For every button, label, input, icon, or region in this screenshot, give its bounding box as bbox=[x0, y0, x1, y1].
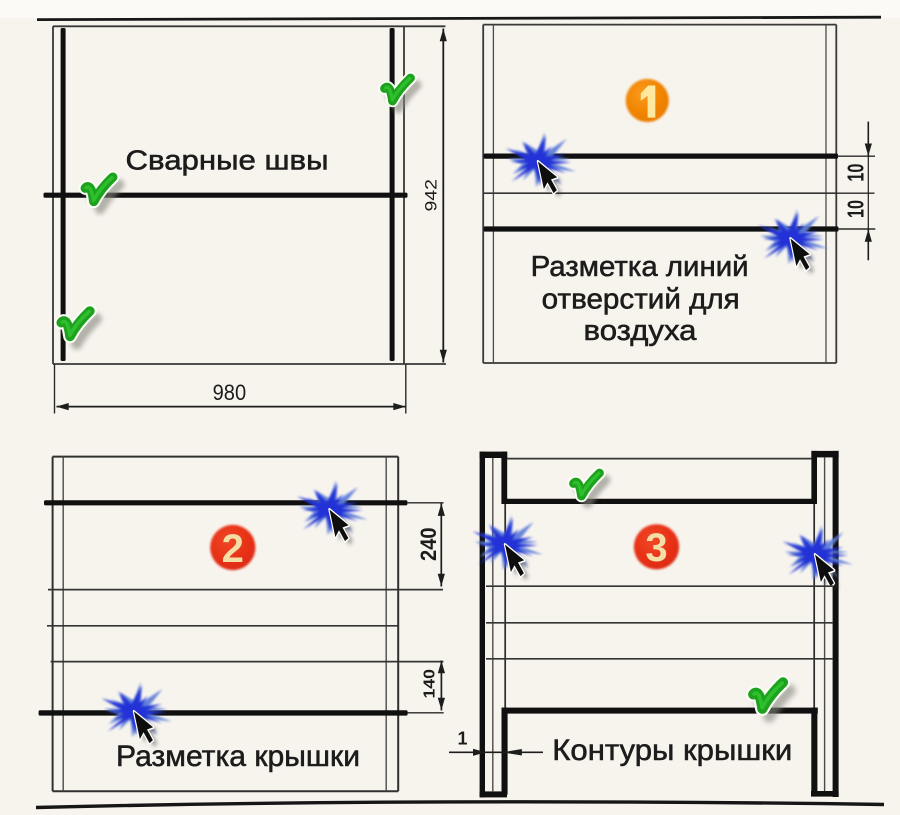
svg-text:Сварные швы: Сварные швы bbox=[126, 145, 329, 176]
svg-text:10: 10 bbox=[842, 164, 868, 182]
svg-text:3: 3 bbox=[645, 526, 667, 570]
svg-text:отверстий для: отверстий для bbox=[542, 283, 740, 315]
svg-text:1: 1 bbox=[457, 729, 467, 749]
svg-text:942: 942 bbox=[421, 179, 440, 212]
svg-text:Контуры крышки: Контуры крышки bbox=[552, 734, 792, 767]
svg-text:980: 980 bbox=[213, 380, 247, 405]
svg-text:10: 10 bbox=[842, 200, 868, 218]
svg-text:Разметка крышки: Разметка крышки bbox=[116, 740, 360, 773]
svg-text:Разметка линий: Разметка линий bbox=[531, 251, 749, 283]
svg-text:2: 2 bbox=[222, 527, 244, 571]
svg-text:240: 240 bbox=[416, 527, 441, 561]
svg-text:140: 140 bbox=[422, 669, 439, 699]
svg-text:воздуха: воздуха bbox=[584, 315, 697, 347]
